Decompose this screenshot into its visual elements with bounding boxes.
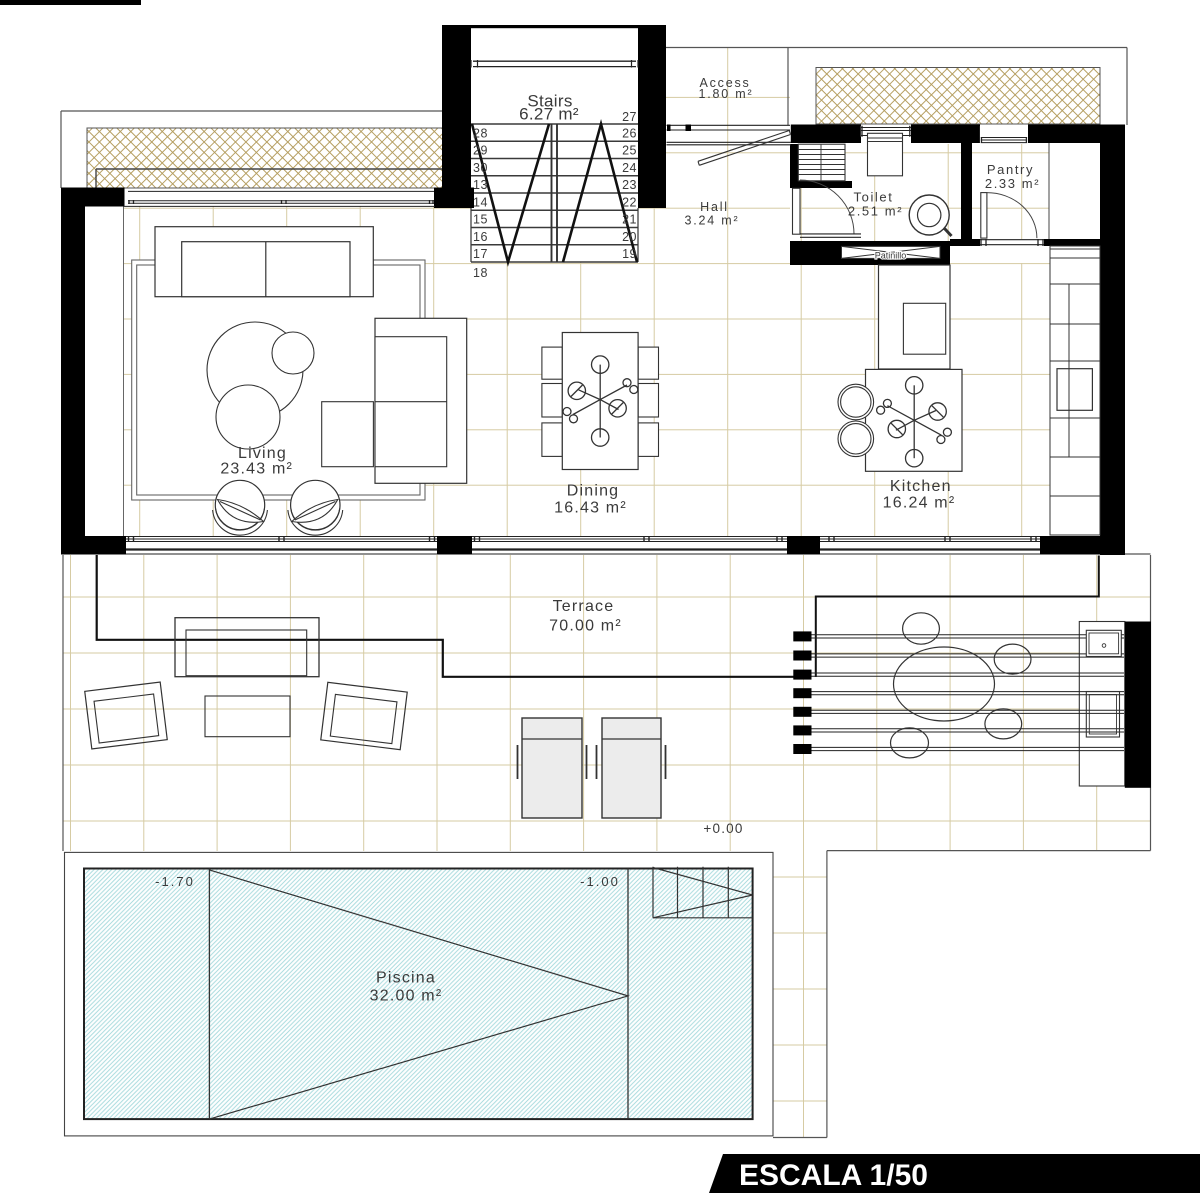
svg-text:Hall: Hall xyxy=(700,200,729,214)
svg-text:20: 20 xyxy=(622,230,637,244)
svg-text:15: 15 xyxy=(473,213,488,227)
svg-text:-1.00: -1.00 xyxy=(580,874,620,889)
svg-text:+0.00: +0.00 xyxy=(703,821,743,836)
svg-text:18: 18 xyxy=(473,266,488,280)
svg-text:19: 19 xyxy=(622,247,637,261)
svg-text:28: 28 xyxy=(473,126,488,140)
svg-text:26: 26 xyxy=(622,126,637,140)
svg-text:ESCALA 1/50: ESCALA 1/50 xyxy=(739,1159,928,1192)
svg-text:16.43 m²: 16.43 m² xyxy=(554,500,627,517)
svg-text:1.80 m²: 1.80 m² xyxy=(699,87,754,101)
svg-text:70.00 m²: 70.00 m² xyxy=(549,618,622,635)
svg-text:Dining: Dining xyxy=(567,483,620,500)
svg-text:Patinillo: Patinillo xyxy=(875,251,907,261)
svg-text:2.33 m²: 2.33 m² xyxy=(985,176,1040,191)
svg-text:23.43 m²: 23.43 m² xyxy=(220,461,293,478)
svg-text:24: 24 xyxy=(622,161,637,175)
svg-text:29: 29 xyxy=(473,144,488,158)
svg-text:Piscina: Piscina xyxy=(376,970,436,987)
svg-text:Living: Living xyxy=(238,445,287,462)
svg-text:22: 22 xyxy=(622,195,637,209)
svg-text:Terrace: Terrace xyxy=(553,598,615,615)
svg-text:14: 14 xyxy=(473,195,488,209)
svg-text:21: 21 xyxy=(622,213,637,227)
svg-text:30: 30 xyxy=(473,161,488,175)
svg-text:25: 25 xyxy=(622,144,637,158)
svg-text:13: 13 xyxy=(473,178,488,192)
svg-text:Toilet: Toilet xyxy=(854,190,894,205)
svg-text:-1.70: -1.70 xyxy=(155,874,195,889)
svg-text:Pantry: Pantry xyxy=(987,162,1034,177)
svg-text:16.24 m²: 16.24 m² xyxy=(883,494,956,511)
svg-text:23: 23 xyxy=(622,178,637,192)
svg-text:27: 27 xyxy=(622,110,637,124)
svg-text:32.00 m²: 32.00 m² xyxy=(370,988,443,1005)
svg-text:6.27 m²: 6.27 m² xyxy=(519,105,579,124)
svg-text:3.24 m²: 3.24 m² xyxy=(685,214,740,228)
svg-text:17: 17 xyxy=(473,247,488,261)
svg-text:2.51 m²: 2.51 m² xyxy=(848,204,903,219)
svg-text:16: 16 xyxy=(473,230,488,244)
svg-text:Kitchen: Kitchen xyxy=(890,478,952,495)
